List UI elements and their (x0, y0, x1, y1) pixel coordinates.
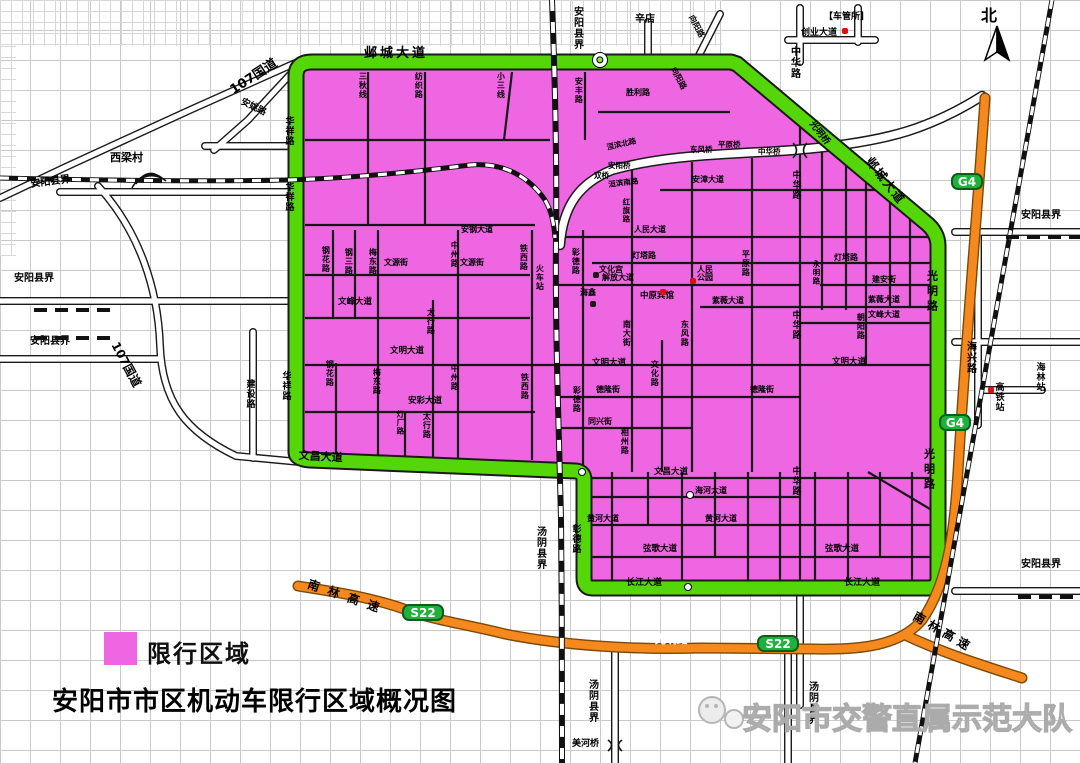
street-label: 北 (981, 8, 997, 25)
border-dash-segment (76, 308, 89, 312)
street-label: 灯塔路 (632, 252, 656, 260)
street-label: 红旗路 (622, 198, 630, 224)
street-label: 文峰大道 (338, 298, 372, 307)
street-label: 海鑫 (580, 289, 596, 297)
roundabout-icon (578, 468, 586, 476)
legend-label: 限行区域 (147, 634, 251, 669)
street-label: 光明路 (926, 270, 938, 315)
legend-restricted-swatch (104, 632, 137, 665)
street-label: 中华路 (790, 466, 799, 496)
border-dash-segment (1039, 595, 1052, 599)
border-dash-segment (1006, 235, 1019, 239)
street-label: 长江大道 (844, 579, 880, 588)
street-label: 南大街 (622, 320, 630, 347)
street-label: 长江大道 (626, 579, 662, 588)
roundabout-icon (686, 491, 694, 499)
street-label: 安彩大道 (408, 397, 442, 406)
street-label: 安漳大道 (692, 176, 724, 184)
street-label: 文化路 (650, 360, 658, 387)
street-label: 文明大道 (832, 358, 866, 367)
street-label: 文明大道 (390, 347, 424, 356)
street-label: 华祥路 (283, 116, 292, 146)
poi-dot (660, 289, 666, 295)
street-label: 中州路 (450, 241, 458, 268)
street-label: 人民公园 (697, 266, 717, 283)
street-label: 太行路 (426, 308, 434, 335)
street-label: 相州路 (620, 428, 628, 455)
street-label: 向阳路 (687, 14, 706, 39)
street-label: 安阳桥 (608, 162, 631, 170)
street-label: 海河大道 (695, 487, 727, 495)
street-label: 梅东路 (368, 248, 376, 275)
street-label: 华祥路 (280, 371, 289, 401)
street-label: 解放大道 (602, 274, 634, 282)
street-label: 钢三路 (344, 248, 352, 275)
street-label: 文源街 (384, 259, 408, 267)
county-border-dash (34, 327, 118, 346)
street-label: 平原桥 (718, 141, 741, 149)
street-label: 向阳路 (669, 66, 688, 91)
poi-dot (988, 387, 994, 393)
street-label: 火车站 (535, 264, 543, 291)
street-label: 建安街 (872, 276, 896, 284)
street-label: 紫薇大道 (712, 297, 744, 305)
border-dash-segment (34, 308, 47, 312)
street-label: 中原宾馆 (640, 292, 674, 301)
street-label: 汤阴县界 (586, 679, 597, 723)
street-label: 西梁村 (110, 152, 143, 164)
poi-dot (842, 28, 848, 34)
street-label: 德隆街 (750, 386, 774, 394)
highway-badge: G4 (939, 414, 971, 431)
street-label: 平原路 (741, 250, 749, 277)
street-label: 安姚路 (239, 98, 267, 118)
street-label: 紫薇大道 (868, 296, 900, 304)
street-label: 洹滨北路 (606, 137, 637, 151)
street-label: 灯塔路 (834, 254, 858, 262)
street-label: 彰德路 (571, 248, 579, 275)
border-dash-segment (1060, 595, 1073, 599)
street-label: 邺城大道 (364, 47, 428, 61)
border-dash-segment (1069, 235, 1080, 239)
street-label: 黄河大道 (587, 515, 619, 523)
street-label: 弦歌大道 (643, 545, 677, 554)
poi-dot (593, 272, 599, 278)
street-label: 文昌大道 (654, 468, 688, 477)
border-dash-segment (97, 336, 110, 340)
border-dash-segment (1018, 595, 1031, 599)
street-label: 海兴路 (964, 341, 975, 374)
street-label: 建设路 (244, 379, 253, 409)
border-dash-segment (76, 336, 89, 340)
street-label: 弦歌大道 (825, 545, 859, 554)
street-label: 太行路 (422, 412, 430, 439)
street-label: 文峰大道 (868, 311, 900, 319)
street-label: 永明路 (812, 260, 820, 286)
roundabout-icon (592, 52, 608, 68)
street-label: 东风路 (680, 320, 688, 347)
street-label: 黄河大道 (705, 515, 737, 523)
street-label: 光明路 (923, 448, 935, 493)
street-label: 中华路 (790, 310, 799, 340)
street-label: 南林高速 (911, 610, 976, 655)
street-label: 海林站 (1034, 362, 1043, 392)
county-border-dash (1006, 226, 1080, 245)
street-label: 洹滨南路 (608, 177, 639, 188)
border-dash-segment (1027, 235, 1040, 239)
county-border-dash (34, 299, 118, 318)
highway-badge: S22 (402, 604, 444, 621)
border-dash-segment (34, 336, 47, 340)
street-label: 中华路 (790, 170, 799, 200)
street-label: 安阳县界 (30, 175, 71, 190)
street-label: 南林高速 (306, 578, 390, 617)
street-label: 中华路 (788, 46, 799, 79)
page-title: 安阳市市区机动车限行区域概况图 (52, 681, 457, 718)
street-label: 文化宫 (599, 266, 623, 274)
street-label: 彰德路 (570, 524, 579, 554)
poi-dot (690, 278, 696, 284)
street-label: 安阳县界 (1021, 211, 1061, 222)
watermark-text: 安阳市交警直属示范大队 (742, 694, 1072, 738)
street-label: 灯厂路 (396, 410, 404, 436)
highway-badge: S22 (757, 635, 799, 652)
street-label: 安钢大道 (461, 226, 493, 234)
street-label: 中华桥 (758, 148, 781, 156)
street-label: 纺织路 (414, 72, 422, 99)
street-label: 文明大道 (592, 359, 626, 368)
street-label: 小三线 (496, 72, 504, 99)
street-label: 107国道 (109, 340, 143, 389)
street-label: 安丰路 (574, 77, 582, 104)
border-dash-segment (1048, 235, 1061, 239)
street-label: 汤阴县界 (534, 526, 545, 570)
street-label: 创业大道 (801, 29, 837, 38)
street-label: 邺城大道 (863, 155, 907, 207)
street-label: 高铁站 (993, 382, 1002, 412)
street-label: 光明桥 (807, 120, 831, 147)
street-label: 美河桥 (572, 740, 599, 749)
street-label: 东风桥 (690, 146, 713, 154)
street-label: 【车管所】 (824, 13, 869, 22)
street-label: 安阳县界 (1021, 560, 1061, 571)
street-label: 钢花路 (321, 246, 329, 273)
street-label: 双桥 (594, 172, 609, 180)
border-dash-segment (97, 308, 110, 312)
street-label: 安阳县界 (14, 274, 54, 285)
poi-dot (590, 301, 596, 307)
street-label: 德隆街 (596, 386, 620, 394)
street-label: 同兴街 (588, 418, 612, 426)
street-label: 华祥路 (283, 182, 292, 212)
street-label: 安阳县界 (571, 6, 582, 50)
street-label: 光明路 (655, 634, 688, 646)
highway-badge: G4 (951, 173, 983, 190)
street-label: 胜利路 (626, 89, 650, 97)
street-label: 铁西路 (519, 244, 527, 271)
street-label: 钢花路 (325, 360, 333, 387)
street-label: 辛店 (635, 15, 655, 26)
street-label: 文源街 (460, 259, 484, 267)
border-dash-segment (55, 336, 68, 340)
map-canvas: 107国道安姚路西梁村安阳县界安阳县界安阳县界安阳县界安阳县界安阳县界107国道… (0, 0, 1080, 763)
border-dash-segment (55, 308, 68, 312)
roundabout-inner (596, 56, 603, 63)
street-label: 107国道 (228, 57, 280, 97)
county-border-dash (1018, 586, 1080, 605)
street-label: 彰德路 (572, 386, 580, 413)
roundabout-icon (684, 583, 692, 591)
street-label: 人民大道 (634, 226, 666, 234)
street-label: 朝阳路 (856, 313, 864, 340)
street-label: 中州路 (450, 364, 458, 391)
street-label: 铁西路 (520, 373, 528, 400)
street-label: 梅东路 (372, 368, 380, 395)
street-label: 三秋线 (358, 72, 366, 99)
street-label: 文昌大道 (298, 450, 343, 464)
